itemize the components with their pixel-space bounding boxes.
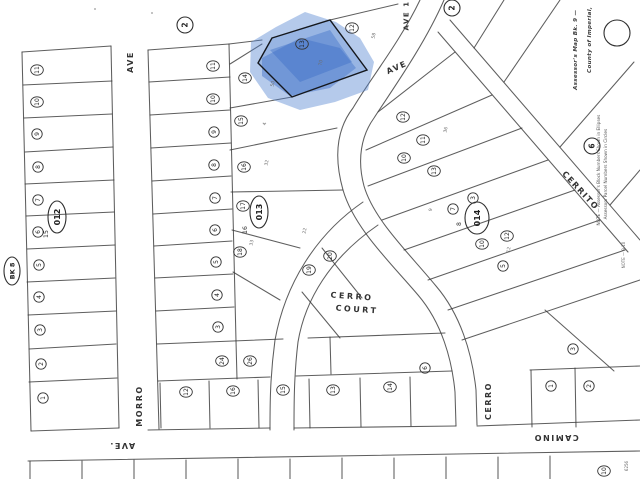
parcel-number: 16 bbox=[230, 387, 237, 395]
parcel-number: 8 bbox=[35, 165, 42, 169]
parcel-number: 5 bbox=[213, 260, 220, 264]
parcel-circle: 6 bbox=[210, 225, 220, 235]
parcel-circle: 7 bbox=[448, 204, 458, 214]
parcel-circle: 8 bbox=[209, 160, 219, 170]
street-label-morro-ave-upper: AVE bbox=[127, 32, 135, 92]
parcel-number: 12 bbox=[504, 232, 511, 240]
parcel-number: 1 bbox=[548, 384, 555, 388]
parcel-number: 7 bbox=[35, 198, 42, 202]
parcel-number: 8 bbox=[211, 163, 218, 167]
dimension-number: 22 bbox=[302, 227, 309, 234]
parcel-number: 18 bbox=[237, 248, 244, 256]
dimension-number: 58 bbox=[371, 32, 378, 39]
street-label-ave-1: AVE 1 bbox=[404, 0, 411, 46]
parcel-number: 20 bbox=[327, 252, 334, 260]
parcel-number: 16 bbox=[241, 163, 248, 171]
parcel-circle: 3 bbox=[568, 344, 578, 354]
reference-circle: 2 bbox=[177, 17, 193, 33]
parcel-circle: 7 bbox=[210, 193, 220, 203]
block-number: 012 bbox=[53, 209, 62, 226]
parcel-circle: 17 bbox=[237, 201, 250, 211]
empty-reference-circle bbox=[604, 20, 630, 46]
parcel-number: 17 bbox=[240, 202, 247, 210]
parcel-circle: 16 bbox=[238, 162, 251, 172]
block-number: BK 8 bbox=[8, 262, 16, 279]
parcel-circle: 5 bbox=[211, 257, 221, 267]
parcel-number: 9 bbox=[211, 130, 218, 134]
parcel-number: 3 bbox=[470, 196, 477, 200]
parcel-number: 14 bbox=[242, 74, 249, 82]
parcel-number: 3 bbox=[570, 347, 577, 351]
dimension-number: 33 bbox=[249, 239, 256, 246]
parcel-number: 2 bbox=[38, 362, 45, 366]
parcel-number: 7 bbox=[450, 207, 457, 211]
parcel-number: 10 bbox=[601, 467, 608, 475]
dimension-number: 32 bbox=[264, 159, 271, 166]
parcel-circle: 10 bbox=[398, 153, 411, 163]
block-ellipse: 013 bbox=[250, 196, 268, 228]
parcel-circle: 26 bbox=[244, 356, 257, 366]
dimension-number: 9 bbox=[428, 208, 434, 212]
parcel-circle: 12 bbox=[501, 231, 514, 241]
margin-note-circles: Assessors Parcel Numbers Shown in Circle… bbox=[604, 99, 608, 249]
plat-map-canvas: 507043233225836912 111098765432111109876… bbox=[0, 0, 640, 479]
dimension-number: 4 bbox=[262, 122, 268, 126]
parcel-circle: 10 bbox=[598, 466, 611, 476]
margin-county-title: County of Imperial, bbox=[588, 0, 594, 100]
street-label-cerro: CERRO bbox=[485, 371, 493, 431]
assessor-plat-map: 507043233225836912 111098765432111109876… bbox=[0, 0, 640, 479]
parcel-circle: 18 bbox=[234, 247, 247, 257]
parcel-number: 15 bbox=[280, 386, 287, 394]
parcel-circle: 13 bbox=[428, 166, 441, 176]
parcel-circle: 9 bbox=[32, 129, 42, 139]
margin-map-book-title: Assessor's Map Bk. 9 — bbox=[574, 0, 580, 110]
parcel-circle: 12 bbox=[397, 112, 410, 122]
scan-speck bbox=[151, 12, 153, 14]
parcel-number: 19 bbox=[306, 266, 313, 274]
parcel-number: 12 bbox=[183, 388, 190, 396]
reference-number: 2 bbox=[181, 22, 190, 27]
dimension-number: 50 bbox=[270, 80, 277, 87]
parcel-number: 2 bbox=[586, 384, 593, 388]
reference-number: 2 bbox=[448, 5, 457, 10]
parcel-circle: 7 bbox=[33, 195, 43, 205]
block-number: 013 bbox=[255, 204, 264, 221]
parcel-number: 11 bbox=[34, 66, 41, 74]
parcel-circle: 10 bbox=[207, 94, 220, 104]
parcel-number: 6 bbox=[422, 366, 429, 370]
parcel-circle: 8 bbox=[33, 162, 43, 172]
parcel-number: 26 bbox=[247, 357, 254, 365]
block-ellipse: 012 bbox=[48, 201, 66, 233]
parcel-number: 12 bbox=[349, 24, 356, 32]
parcel-number: 7 bbox=[212, 196, 219, 200]
parcel-circle: 3 bbox=[213, 322, 223, 332]
street-label-camino-ave-left: AVE. bbox=[92, 441, 152, 449]
parcel-circle: 16 bbox=[227, 386, 240, 396]
margin-note-ellipses: NOTE — Assessor's Block Numbers Shown in… bbox=[597, 95, 601, 245]
parcel-number: 10 bbox=[479, 240, 486, 248]
block-companion-number: 15 bbox=[43, 230, 50, 238]
dimension-number: 12 bbox=[506, 246, 513, 253]
parcel-number: 11 bbox=[210, 62, 217, 70]
parcel-number: 1 bbox=[40, 396, 47, 400]
block-ellipse: BK 8 bbox=[4, 257, 20, 285]
parcel-number: 3 bbox=[37, 328, 44, 332]
parcel-circle: 11 bbox=[417, 135, 430, 145]
parcel-number: 4 bbox=[214, 293, 221, 297]
parcel-circle: 1 bbox=[38, 393, 48, 403]
margin-side-note: NOTE — 9-10 bbox=[622, 225, 626, 285]
reference-circle: 2 bbox=[444, 0, 460, 16]
parcel-number: 10 bbox=[401, 154, 408, 162]
parcel-number: 6 bbox=[35, 230, 42, 234]
block-companion-number: 8 bbox=[456, 222, 463, 226]
parcel-number: 11 bbox=[420, 136, 427, 144]
parcel-number: 12 bbox=[400, 113, 407, 121]
block-companion-number: 16 bbox=[242, 226, 249, 234]
parcel-number: 14 bbox=[387, 383, 394, 391]
parcel-circle: 10 bbox=[31, 97, 44, 107]
parcel-number: 10 bbox=[34, 98, 41, 106]
parcel-number: 13 bbox=[431, 167, 438, 175]
parcel-number: 13 bbox=[299, 40, 306, 48]
block-ellipse: 014 bbox=[465, 202, 489, 234]
dimension-number: 36 bbox=[443, 126, 450, 133]
parcel-circle: 11 bbox=[31, 65, 44, 75]
margin-corner-number: 6256 bbox=[625, 451, 629, 479]
parcel-circle: 6 bbox=[33, 227, 43, 237]
parcel-number: 10 bbox=[210, 95, 217, 103]
parcel-circle: 5 bbox=[34, 260, 44, 270]
parcel-number: 5 bbox=[36, 263, 43, 267]
scan-speck bbox=[94, 8, 96, 10]
parcel-number: 6 bbox=[212, 228, 219, 232]
parcel-circle: 13 bbox=[327, 385, 340, 395]
parcel-number: 5 bbox=[500, 264, 507, 268]
parcel-circle: 5 bbox=[498, 261, 508, 271]
parcel-number: 4 bbox=[36, 295, 43, 299]
parcel-circle: 19 bbox=[303, 265, 316, 275]
parcel-number: 3 bbox=[215, 325, 222, 329]
block-number: 014 bbox=[473, 209, 482, 226]
parcel-circle: 10 bbox=[476, 239, 489, 249]
parcel-circle: 1 bbox=[546, 381, 556, 391]
parcel-circle: 15 bbox=[235, 116, 248, 126]
street-label-camino: CAMINO bbox=[526, 433, 586, 441]
parcel-circle: 2 bbox=[584, 381, 594, 391]
street-label-morro: MORRO bbox=[136, 376, 144, 436]
parcel-circle: 4 bbox=[34, 292, 44, 302]
parcel-number: 13 bbox=[330, 386, 337, 394]
parcel-number: 15 bbox=[238, 117, 245, 125]
dimension-number: 70 bbox=[318, 59, 325, 66]
parcel-circle: 14 bbox=[384, 382, 397, 392]
parcel-circle: 4 bbox=[212, 290, 222, 300]
parcel-circle: 12 bbox=[180, 387, 193, 397]
parcel-circle: 11 bbox=[207, 61, 220, 71]
parcel-number: 24 bbox=[219, 357, 226, 365]
parcel-circle: 2 bbox=[36, 359, 46, 369]
parcel-circle: 24 bbox=[216, 356, 229, 366]
parcel-circle: 9 bbox=[209, 127, 219, 137]
parcel-number: 9 bbox=[34, 132, 41, 136]
parcel-circle: 12 bbox=[346, 23, 359, 33]
parcel-circle: 20 bbox=[324, 251, 337, 261]
parcel-circle: 3 bbox=[35, 325, 45, 335]
parcel-circle: 14 bbox=[239, 73, 252, 83]
parcel-circle: 15 bbox=[277, 385, 290, 395]
